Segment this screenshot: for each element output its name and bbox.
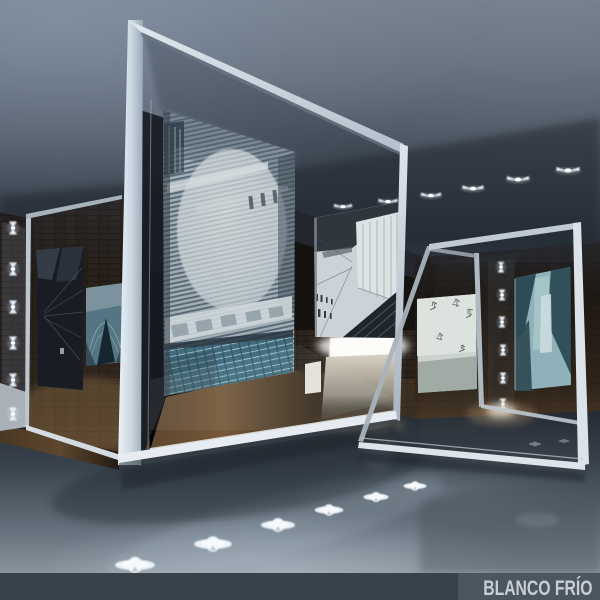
- svg-text:BLANCO FRÍO: BLANCO FRÍO: [483, 576, 592, 600]
